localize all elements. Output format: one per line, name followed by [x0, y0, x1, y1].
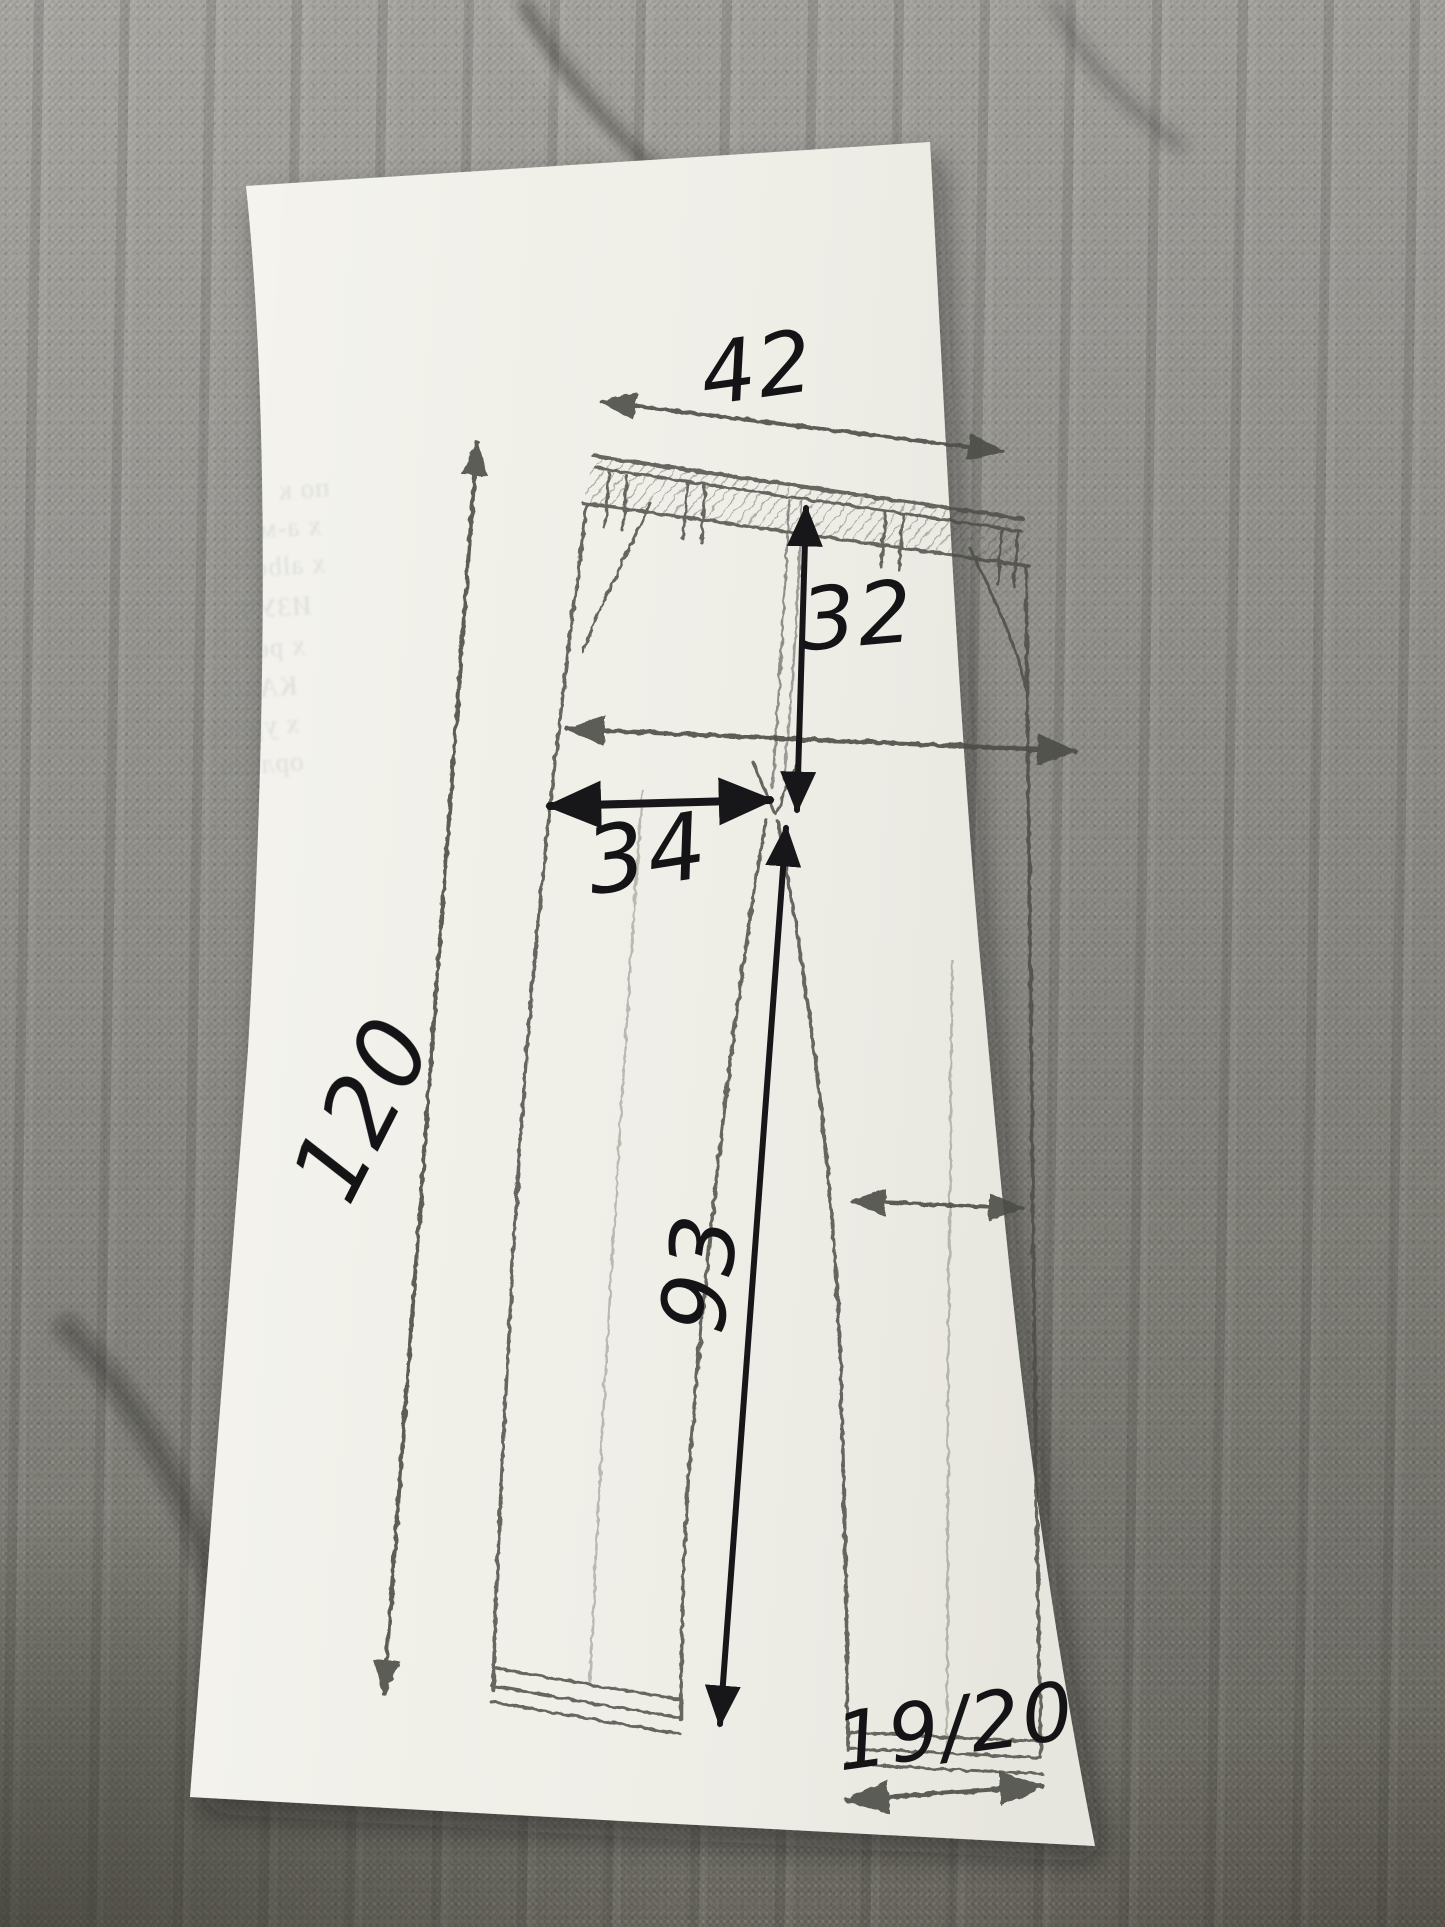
ghost-line: х а-м — [257, 510, 322, 544]
paper-shading — [190, 142, 1095, 1846]
hip-width-label: 34 — [579, 792, 715, 917]
photo-scene: по к х а-м х albo ИЗУЧ х рес КАЗН х урес… — [0, 0, 1445, 1927]
ghost-line: по к — [277, 472, 331, 506]
inseam-label: 93 — [640, 1207, 760, 1339]
ghost-line: КАЗН — [223, 670, 299, 705]
front-rise-label: 32 — [797, 562, 919, 672]
ghost-line: х урес — [221, 708, 301, 743]
ghost-line: х рес — [241, 630, 306, 664]
waist-width-label: 42 — [694, 311, 820, 426]
ghost-line: ИЗУЧ — [237, 590, 312, 625]
ghost-line: орлеан — [218, 746, 305, 782]
ghost-line: х albo — [252, 548, 327, 583]
measurement-sketch: по к х а-м х albo ИЗУЧ х рес КАЗН х урес… — [0, 0, 1445, 1927]
